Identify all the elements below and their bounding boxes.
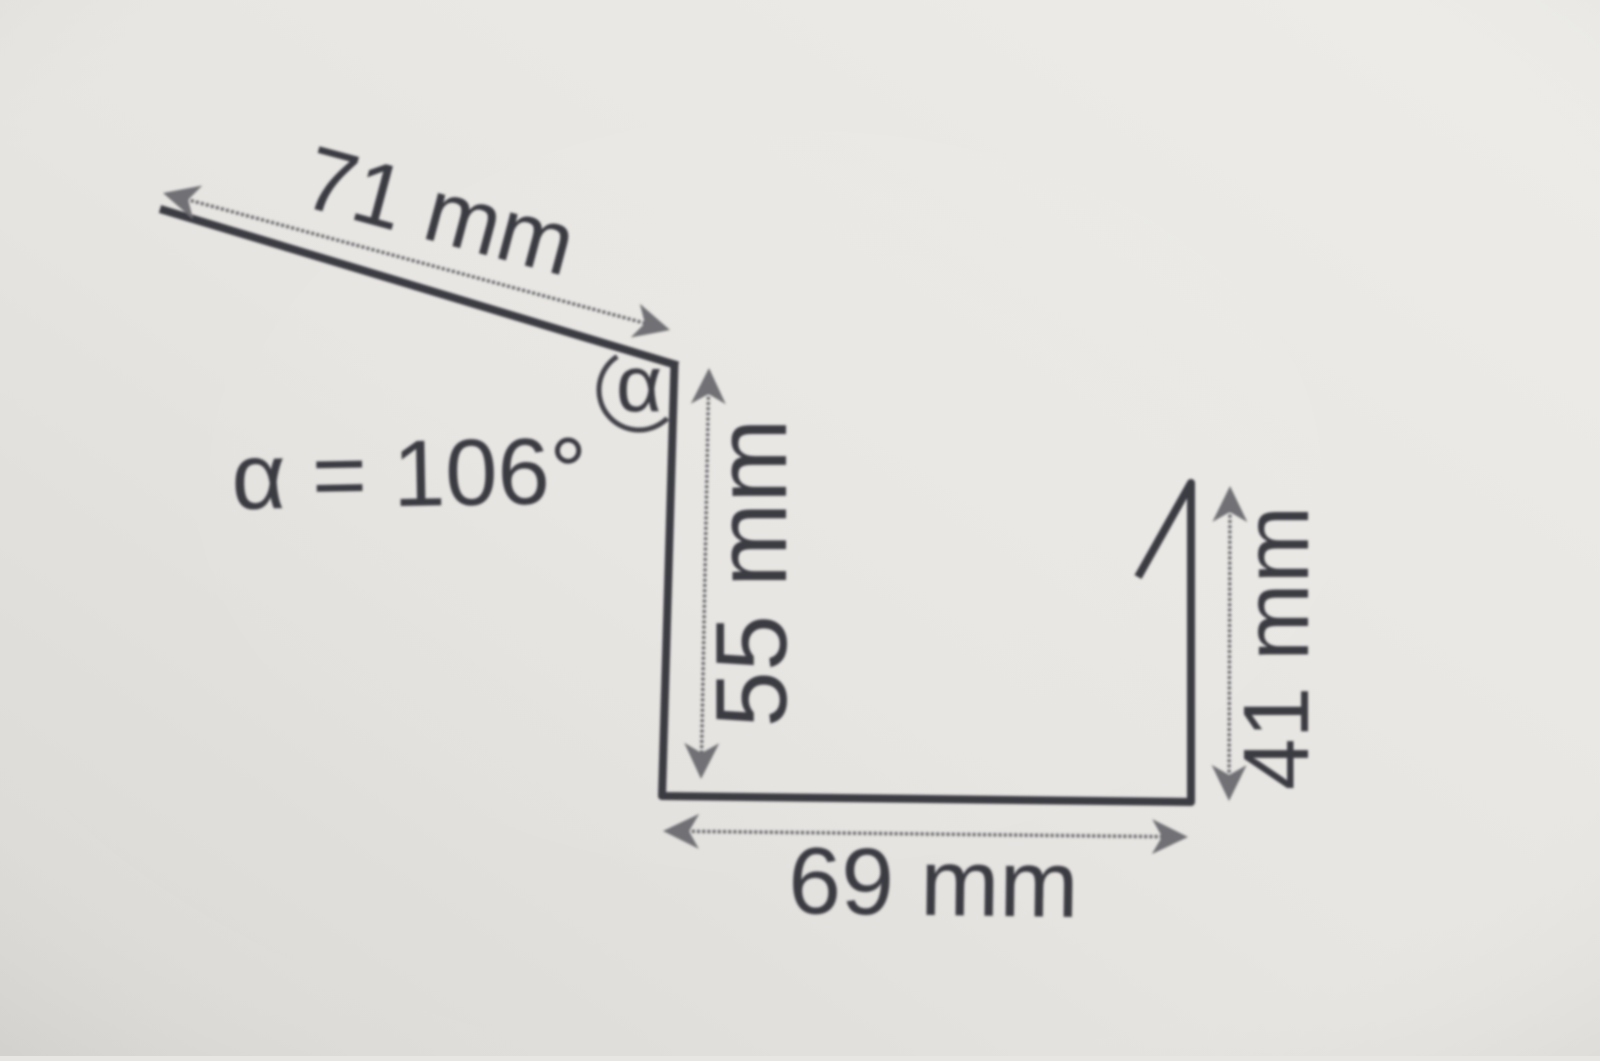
- svg-text:55 mm: 55 mm: [696, 419, 808, 728]
- svg-text:α: α: [616, 339, 662, 428]
- svg-text:α = 106°: α = 106°: [231, 418, 589, 529]
- svg-text:69 mm: 69 mm: [788, 828, 1080, 938]
- svg-text:41 mm: 41 mm: [1224, 506, 1328, 790]
